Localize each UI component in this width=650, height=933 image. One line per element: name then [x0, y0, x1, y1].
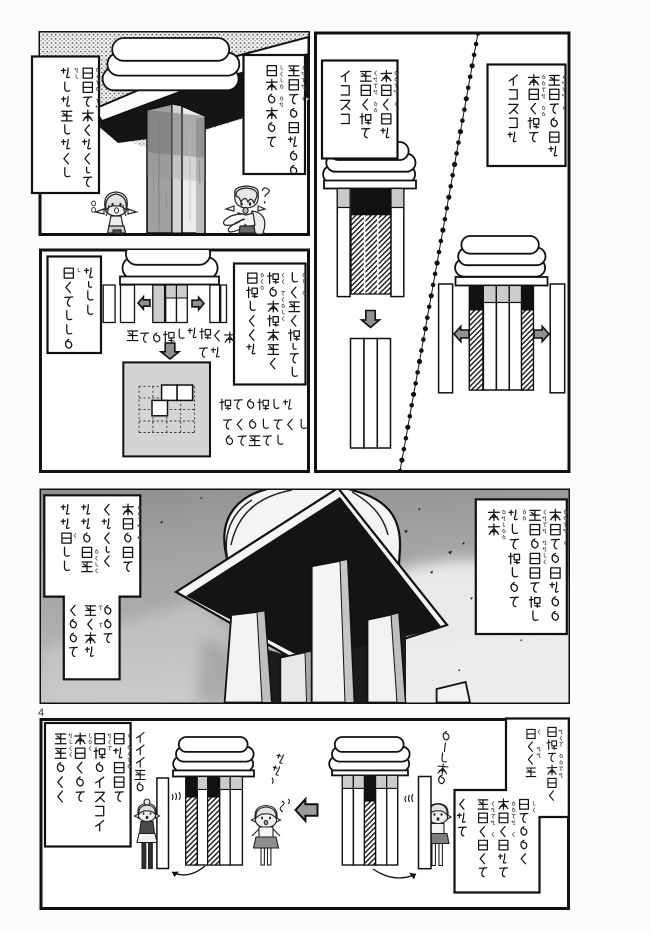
svg-text:4: 4	[38, 707, 44, 719]
